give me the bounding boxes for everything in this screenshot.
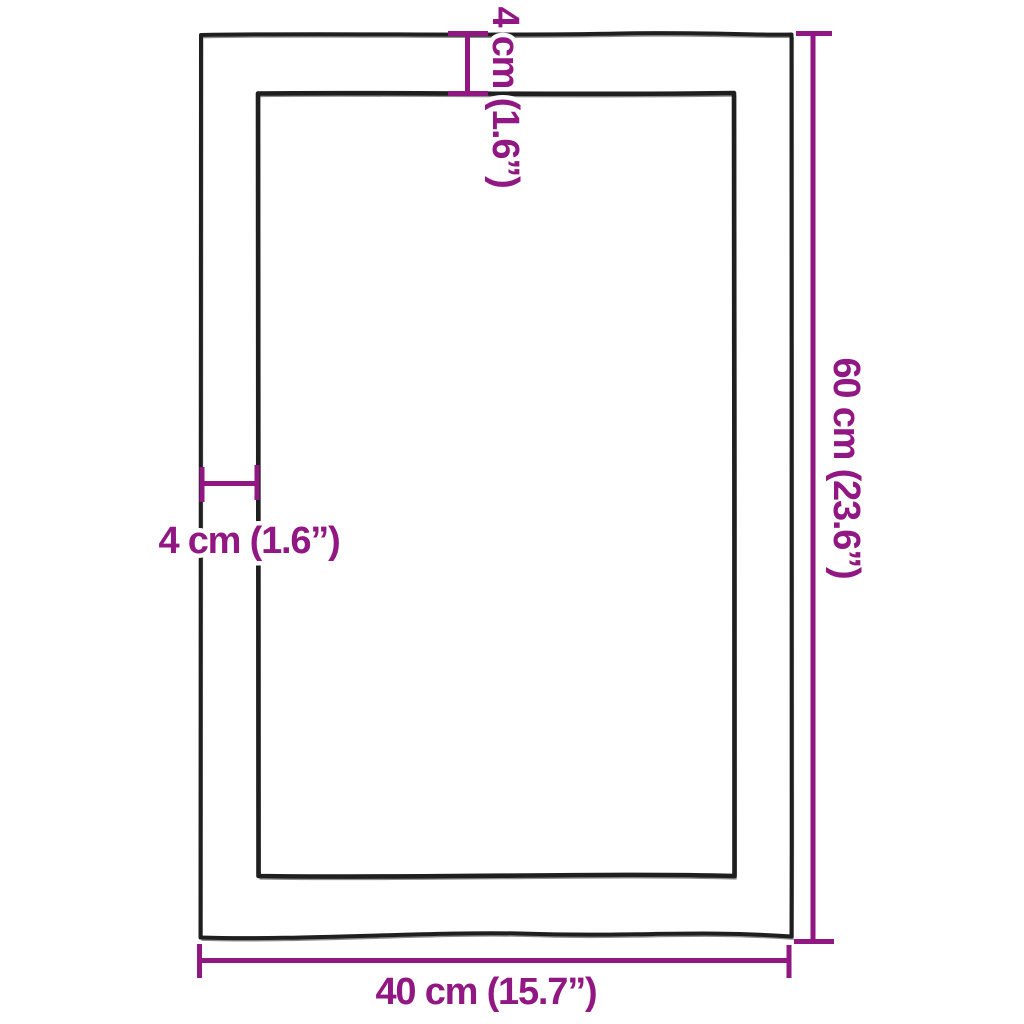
- left-border-dimension-label: 4 cm (1.6”): [158, 520, 339, 562]
- height-dimension-label: 60 cm (23.6”): [825, 358, 867, 579]
- left-border-dimension: 4 cm (1.6”): [158, 465, 339, 562]
- dimension-diagram: 4 cm (1.6”) 4 cm (1.6”) 60 cm (23.6”) 40…: [0, 0, 1024, 1024]
- frame-inner-edge-shadow: [260, 96, 737, 880]
- frame-inner-edge: [258, 93, 735, 877]
- top-border-dimension-label: 4 cm (1.6”): [484, 6, 526, 187]
- width-dimension-label: 40 cm (15.7”): [376, 971, 597, 1013]
- height-dimension: 60 cm (23.6”): [794, 33, 867, 942]
- width-dimension: 40 cm (15.7”): [199, 944, 789, 1013]
